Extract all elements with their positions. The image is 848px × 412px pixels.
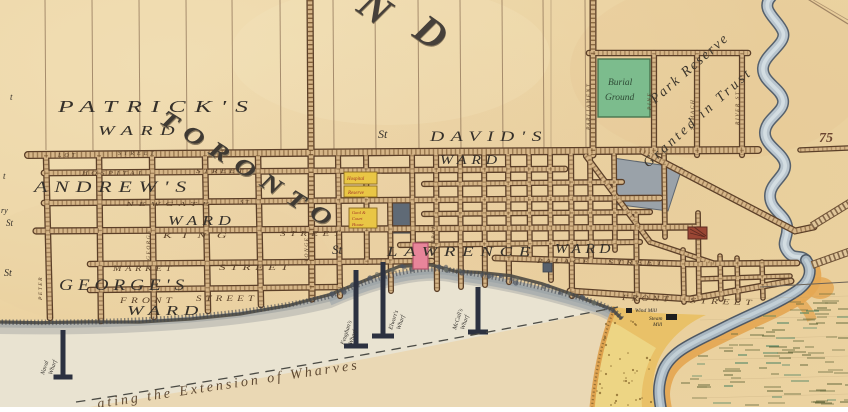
- svg-text:House: House: [351, 222, 364, 227]
- svg-text:GEORGE: GEORGE: [146, 229, 152, 260]
- svg-text:NEWGATE: NEWGATE: [124, 201, 214, 208]
- svg-text:STREET: STREET: [196, 169, 246, 175]
- svg-text:WARD: WARD: [440, 152, 502, 167]
- svg-text:ry: ry: [1, 206, 8, 215]
- svg-text:WARD: WARD: [168, 213, 236, 228]
- svg-text:PETER: PETER: [38, 276, 44, 301]
- svg-text:ANDREW'S: ANDREW'S: [33, 179, 193, 196]
- svg-text:STREET: STREET: [280, 229, 344, 238]
- svg-text:HOSPITAL: HOSPITAL: [81, 171, 146, 177]
- svg-text:CHURCH: CHURCH: [431, 223, 437, 255]
- svg-text:Wind Mill: Wind Mill: [635, 308, 657, 314]
- svg-text:DAVID'S: DAVID'S: [429, 129, 548, 145]
- svg-text:75: 75: [819, 131, 833, 146]
- svg-text:WARD: WARD: [127, 304, 204, 319]
- svg-text:LAWRENCE: LAWRENCE: [386, 245, 537, 260]
- svg-text:GEORGE'S: GEORGE'S: [59, 277, 189, 294]
- svg-text:St: St: [332, 242, 343, 257]
- svg-text:YONGE: YONGE: [304, 236, 310, 262]
- svg-text:PALACE: PALACE: [536, 258, 593, 266]
- svg-text:FRONT: FRONT: [119, 296, 176, 305]
- svg-text:St: St: [4, 268, 12, 279]
- svg-text:WARD: WARD: [555, 242, 615, 257]
- svg-text:Burial: Burial: [608, 78, 633, 88]
- svg-text:Mill: Mill: [652, 322, 663, 328]
- svg-text:St: St: [6, 218, 14, 228]
- svg-text:PARLIAMENT: PARLIAMENT: [586, 83, 592, 131]
- svg-text:PATRICK'S: PATRICK'S: [56, 97, 257, 116]
- svg-text:FRONT: FRONT: [621, 293, 673, 304]
- svg-text:ST: ST: [240, 199, 251, 206]
- svg-text:LOT: LOT: [57, 153, 78, 159]
- svg-text:Reserve: Reserve: [347, 191, 365, 196]
- svg-text:STREET: STREET: [219, 263, 293, 272]
- svg-text:STREET: STREET: [196, 294, 258, 303]
- svg-text:Court: Court: [352, 216, 363, 221]
- svg-text:STREET: STREET: [118, 151, 157, 157]
- svg-text:STREET: STREET: [608, 259, 666, 267]
- svg-text:Gaol &: Gaol &: [352, 210, 366, 215]
- svg-text:KING: KING: [161, 231, 237, 240]
- svg-text:St: St: [378, 127, 388, 141]
- svg-text:MARKET: MARKET: [112, 264, 175, 273]
- svg-text:RIVER ST: RIVER ST: [735, 91, 741, 126]
- svg-text:Hospital: Hospital: [346, 177, 365, 182]
- svg-text:Ground: Ground: [605, 93, 634, 103]
